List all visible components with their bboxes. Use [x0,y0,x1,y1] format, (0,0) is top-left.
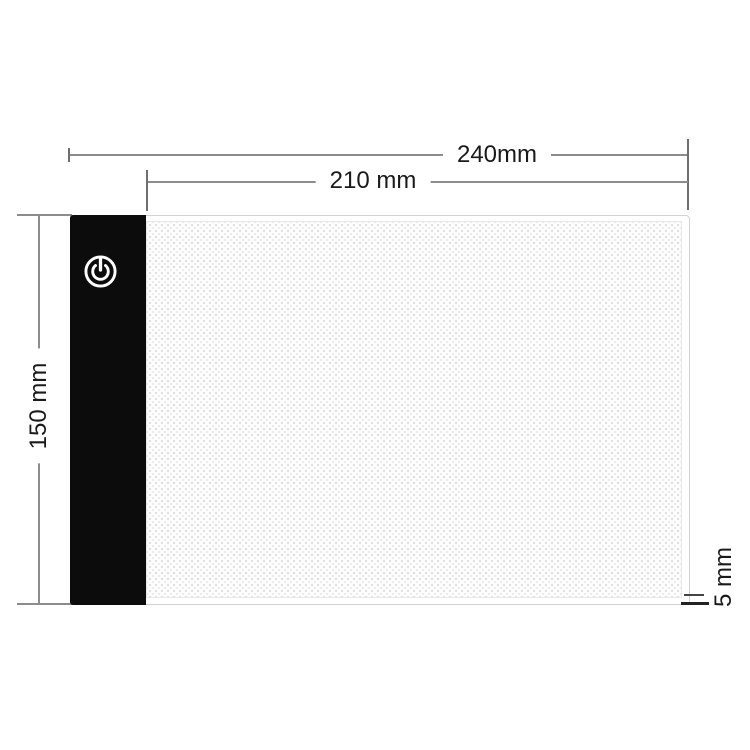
dim-210-left-extension-line [146,170,148,211]
dim-240-left-tick [68,148,70,162]
power-icon [83,254,118,289]
dim-right-extension-line [687,139,689,210]
dim-5-bottom-tick [681,602,712,605]
dim-210-label: 210 mm [316,166,431,196]
drawing-surface [146,221,682,598]
dim-240-label: 240mm [443,140,551,170]
dim-5-top-tick [684,594,704,596]
dim-240-line [69,154,688,156]
product-diagram: 240mm 210 mm 150 mm 5 mm [0,0,750,750]
dim-150-label: 150 mm [24,349,54,464]
dim-150-top-tick [17,214,72,216]
dim-5-label: 5 mm [709,541,739,613]
